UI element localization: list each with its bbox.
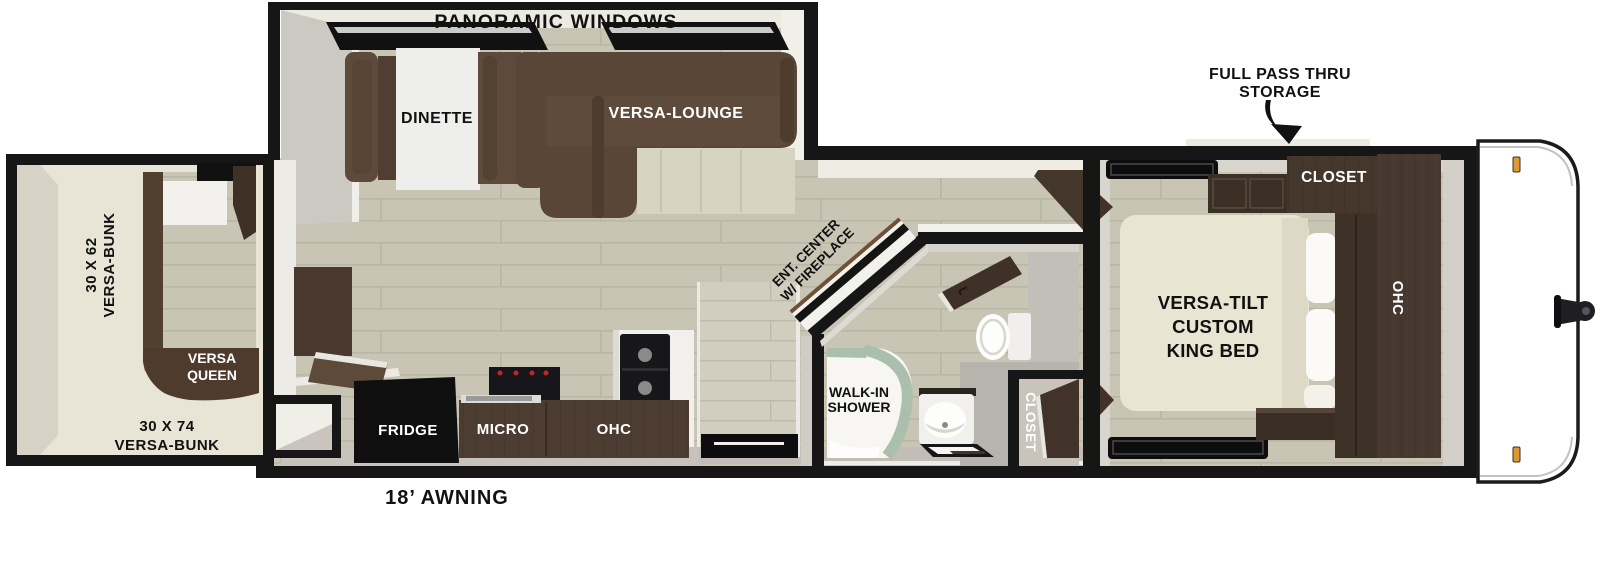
svg-text:FRIDGE: FRIDGE (378, 422, 438, 439)
svg-text:VERSA: VERSA (188, 350, 236, 366)
svg-text:DINETTE: DINETTE (401, 110, 473, 127)
svg-text:MICRO: MICRO (477, 421, 530, 438)
svg-text:18’ AWNING: 18’ AWNING (385, 487, 509, 509)
svg-text:WALK-IN: WALK-IN (829, 384, 889, 400)
svg-text:OHC: OHC (1389, 281, 1406, 316)
svg-text:QUEEN: QUEEN (187, 367, 237, 383)
svg-text:CLOSET: CLOSET (1301, 169, 1367, 186)
svg-text:OHC: OHC (597, 421, 632, 438)
svg-text:CLOSET: CLOSET (1023, 392, 1039, 452)
svg-text:VERSA-BUNK: VERSA-BUNK (114, 437, 219, 454)
svg-text:SHOWER: SHOWER (828, 399, 891, 415)
svg-text:30 X 62: 30 X 62 (83, 237, 100, 292)
svg-text:STORAGE: STORAGE (1239, 84, 1321, 101)
svg-text:CUSTOM: CUSTOM (1172, 316, 1254, 337)
svg-text:FULL PASS THRU: FULL PASS THRU (1209, 66, 1351, 83)
svg-text:PANORAMIC WINDOWS: PANORAMIC WINDOWS (434, 11, 677, 33)
svg-text:VERSA-TILT: VERSA-TILT (1158, 292, 1269, 313)
svg-text:KING BED: KING BED (1167, 340, 1260, 361)
svg-text:30 X 74: 30 X 74 (139, 418, 194, 435)
svg-text:VERSA-BUNK: VERSA-BUNK (101, 212, 118, 317)
svg-text:VERSA-LOUNGE: VERSA-LOUNGE (609, 105, 744, 122)
